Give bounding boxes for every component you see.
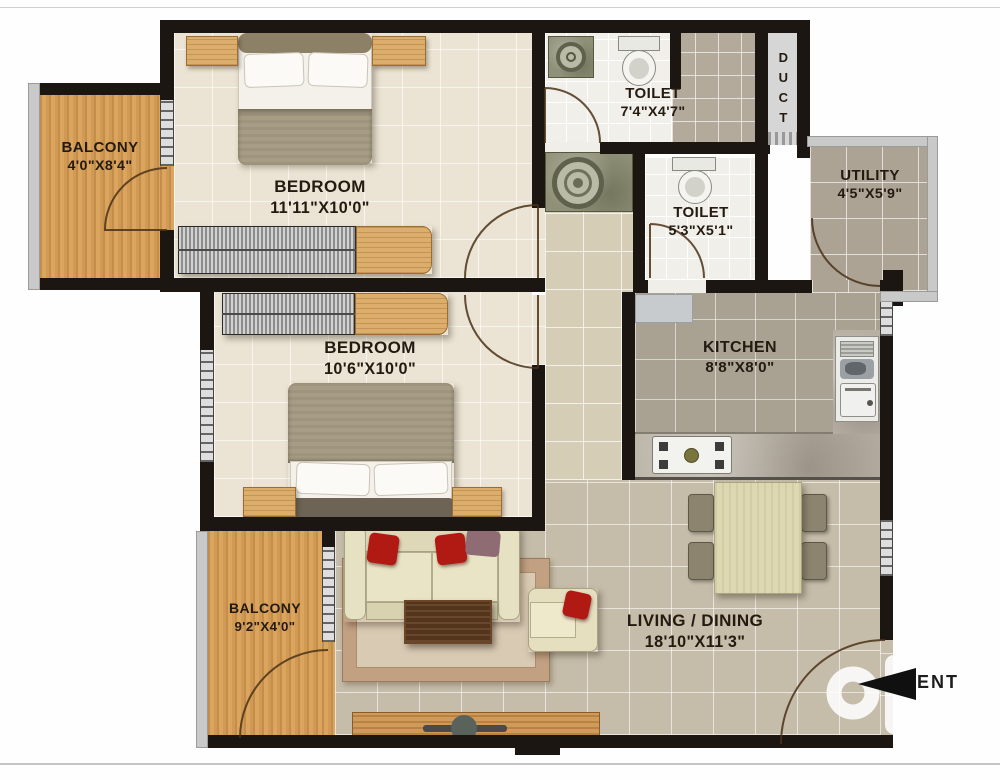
scan-line [0,7,1000,8]
room-label-kitchen: KITCHEN 8'8"X8'0" [660,338,820,378]
room-label-living-dining: LIVING / DINING 18'10"X11'3" [590,610,800,652]
sofa-arm [344,526,366,620]
cushion-red [434,532,467,565]
room-name: BALCONY [202,600,328,618]
wall [322,517,335,547]
utility-railing [927,136,938,302]
room-label-duct: DUCT [768,40,797,140]
wardrobe-side-unit [356,226,432,274]
sink-drainboard [840,341,874,357]
room-dims: 8'8"X8'0" [660,358,820,377]
room-dims: 10'6"X10'0" [270,359,470,380]
pillow [307,52,368,88]
dining-chair [688,494,714,532]
sink-basin [845,362,866,375]
nightstand [186,36,238,66]
wall [160,20,810,33]
wall [770,280,812,293]
wall [160,230,174,292]
wardrobe-divider [178,249,356,251]
room-label-balcony-top: BALCONY 4'0"X8'4" [36,138,164,175]
burner [659,460,668,469]
bed-headboard [288,498,454,518]
wc-toilet [678,170,712,204]
bed-duvet [238,109,372,165]
entrance-arrow-icon [858,668,916,700]
cushion-red [366,532,400,566]
kitchen-counter-edge [635,477,880,480]
room-dims: 4'0"X8'4" [36,157,164,175]
wall [160,278,545,292]
room-label-toilet-mid: TOILET 5'3"X5'1" [642,203,760,240]
wall [200,517,545,531]
room-name: UTILITY [810,166,930,185]
wall [532,20,545,208]
stove [652,436,732,474]
shower-area [548,36,594,78]
wall [28,278,172,290]
room-label-utility: UTILITY 4'5"X5'9" [810,166,930,203]
room-name: DUCT [774,50,791,130]
cushion-red [562,590,593,621]
double-bed [288,383,454,520]
appliance-handle [845,388,871,391]
wc-tank [618,36,660,51]
wall [633,280,648,293]
door-opening [532,208,545,278]
dining-chair [801,494,827,532]
wall [600,142,770,154]
burner [715,442,724,451]
door-opening [532,295,545,365]
burner [715,460,724,469]
pillow [243,52,304,88]
dining-chair [801,542,827,580]
room-label-toilet-top: TOILET 7'4"X4'7" [588,84,718,121]
nightstand [452,487,502,517]
wardrobe-side-unit [355,293,448,335]
shower-drain-center [566,52,576,62]
watermark-caption: INDIA [915,727,962,738]
room-name: BEDROOM [270,337,470,359]
door-opening [322,642,335,735]
scan-line [0,763,1000,765]
kitchen-sink-unit [835,336,879,422]
pillow [295,462,370,497]
washbasin-drain [573,178,583,188]
window [880,302,893,336]
balcony-top-floor [40,95,160,278]
window [880,520,893,576]
corridor-floor [545,212,633,480]
sofa-arm [498,526,520,620]
appliance-knob [867,400,873,406]
room-dims: 9'2"X4'0" [202,618,328,635]
window [200,350,214,462]
nightstand [372,36,426,66]
stove-knob [684,448,699,463]
wc-bowl [629,58,649,79]
dining-chair [688,542,714,580]
room-dims: 4'5"X5'9" [810,185,930,203]
washbasin-counter [545,152,633,212]
wall [622,292,635,480]
cushion-mauve [465,529,501,558]
wc-bowl [685,177,705,197]
burner [659,442,668,451]
wall [28,83,172,95]
door-opening [812,280,880,293]
wardrobe-divider [222,313,355,315]
coffee-table [404,600,492,644]
wc-tank [672,157,716,171]
room-dims: 11'11"X10'0" [220,198,420,219]
wall [670,33,681,89]
kitchen-platform [635,294,693,323]
wall [755,20,768,158]
utility-railing [880,291,938,302]
room-dims: 5'3"X5'1" [642,222,760,240]
kitchen-sink [840,359,874,379]
room-name: KITCHEN [660,338,820,358]
room-name: TOILET [588,84,718,103]
wall [515,746,560,755]
dining-table [714,482,802,594]
door-opening [648,280,706,293]
room-label-bedroom-mid: BEDROOM 10'6"X10'0" [270,337,470,379]
utility-railing [807,136,938,147]
pillow [373,462,448,497]
entrance-label: ENT [917,672,987,693]
bed-bolster [238,33,372,53]
room-dims: 7'4"X4'7" [588,103,718,121]
room-name: TOILET [642,203,760,222]
wall [160,20,174,100]
room-name: BEDROOM [220,176,420,198]
door-opening [160,166,174,230]
balcony-railing [196,531,208,748]
double-bed [238,33,372,163]
armchair [528,588,598,652]
wall [532,365,545,517]
bed-duvet [288,383,454,463]
appliance [840,383,876,417]
room-name: LIVING / DINING [590,610,800,632]
room-label-bedroom-top: BEDROOM 11'11"X10'0" [220,176,420,218]
floor-plan-image: BALCONY 4'0"X8'4" BEDROOM 11'11"X10'0" T… [0,0,1000,780]
balcony-railing [28,83,40,290]
wardrobe [222,293,448,335]
room-name: BALCONY [36,138,164,157]
wall [706,280,770,293]
room-dims: 18'10"X11'3" [590,632,800,653]
room-label-balcony-bottom: BALCONY 9'2"X4'0" [202,600,328,635]
wc-toilet [622,50,656,86]
nightstand [243,487,296,517]
wardrobe [178,226,432,274]
